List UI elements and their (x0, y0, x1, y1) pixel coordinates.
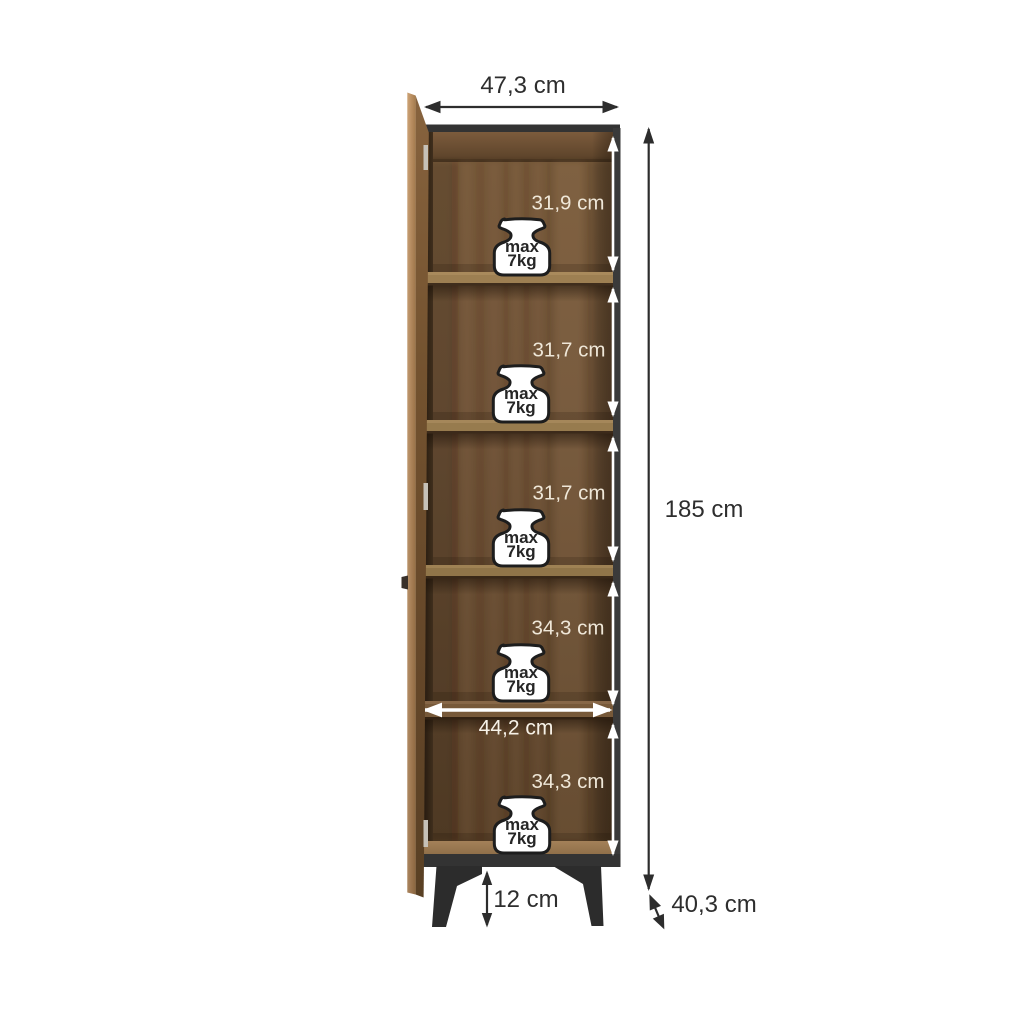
svg-text:12 cm: 12 cm (493, 886, 558, 913)
svg-text:185 cm: 185 cm (665, 496, 744, 523)
svg-text:31,7 cm: 31,7 cm (533, 482, 606, 505)
svg-text:47,3 cm: 47,3 cm (480, 72, 565, 99)
svg-text:31,9 cm: 31,9 cm (532, 192, 605, 215)
svg-text:31,7 cm: 31,7 cm (533, 339, 606, 362)
svg-text:34,3 cm: 34,3 cm (532, 617, 605, 640)
svg-text:34,3 cm: 34,3 cm (532, 770, 605, 793)
svg-text:44,2 cm: 44,2 cm (479, 717, 554, 740)
svg-text:40,3 cm: 40,3 cm (671, 891, 756, 918)
